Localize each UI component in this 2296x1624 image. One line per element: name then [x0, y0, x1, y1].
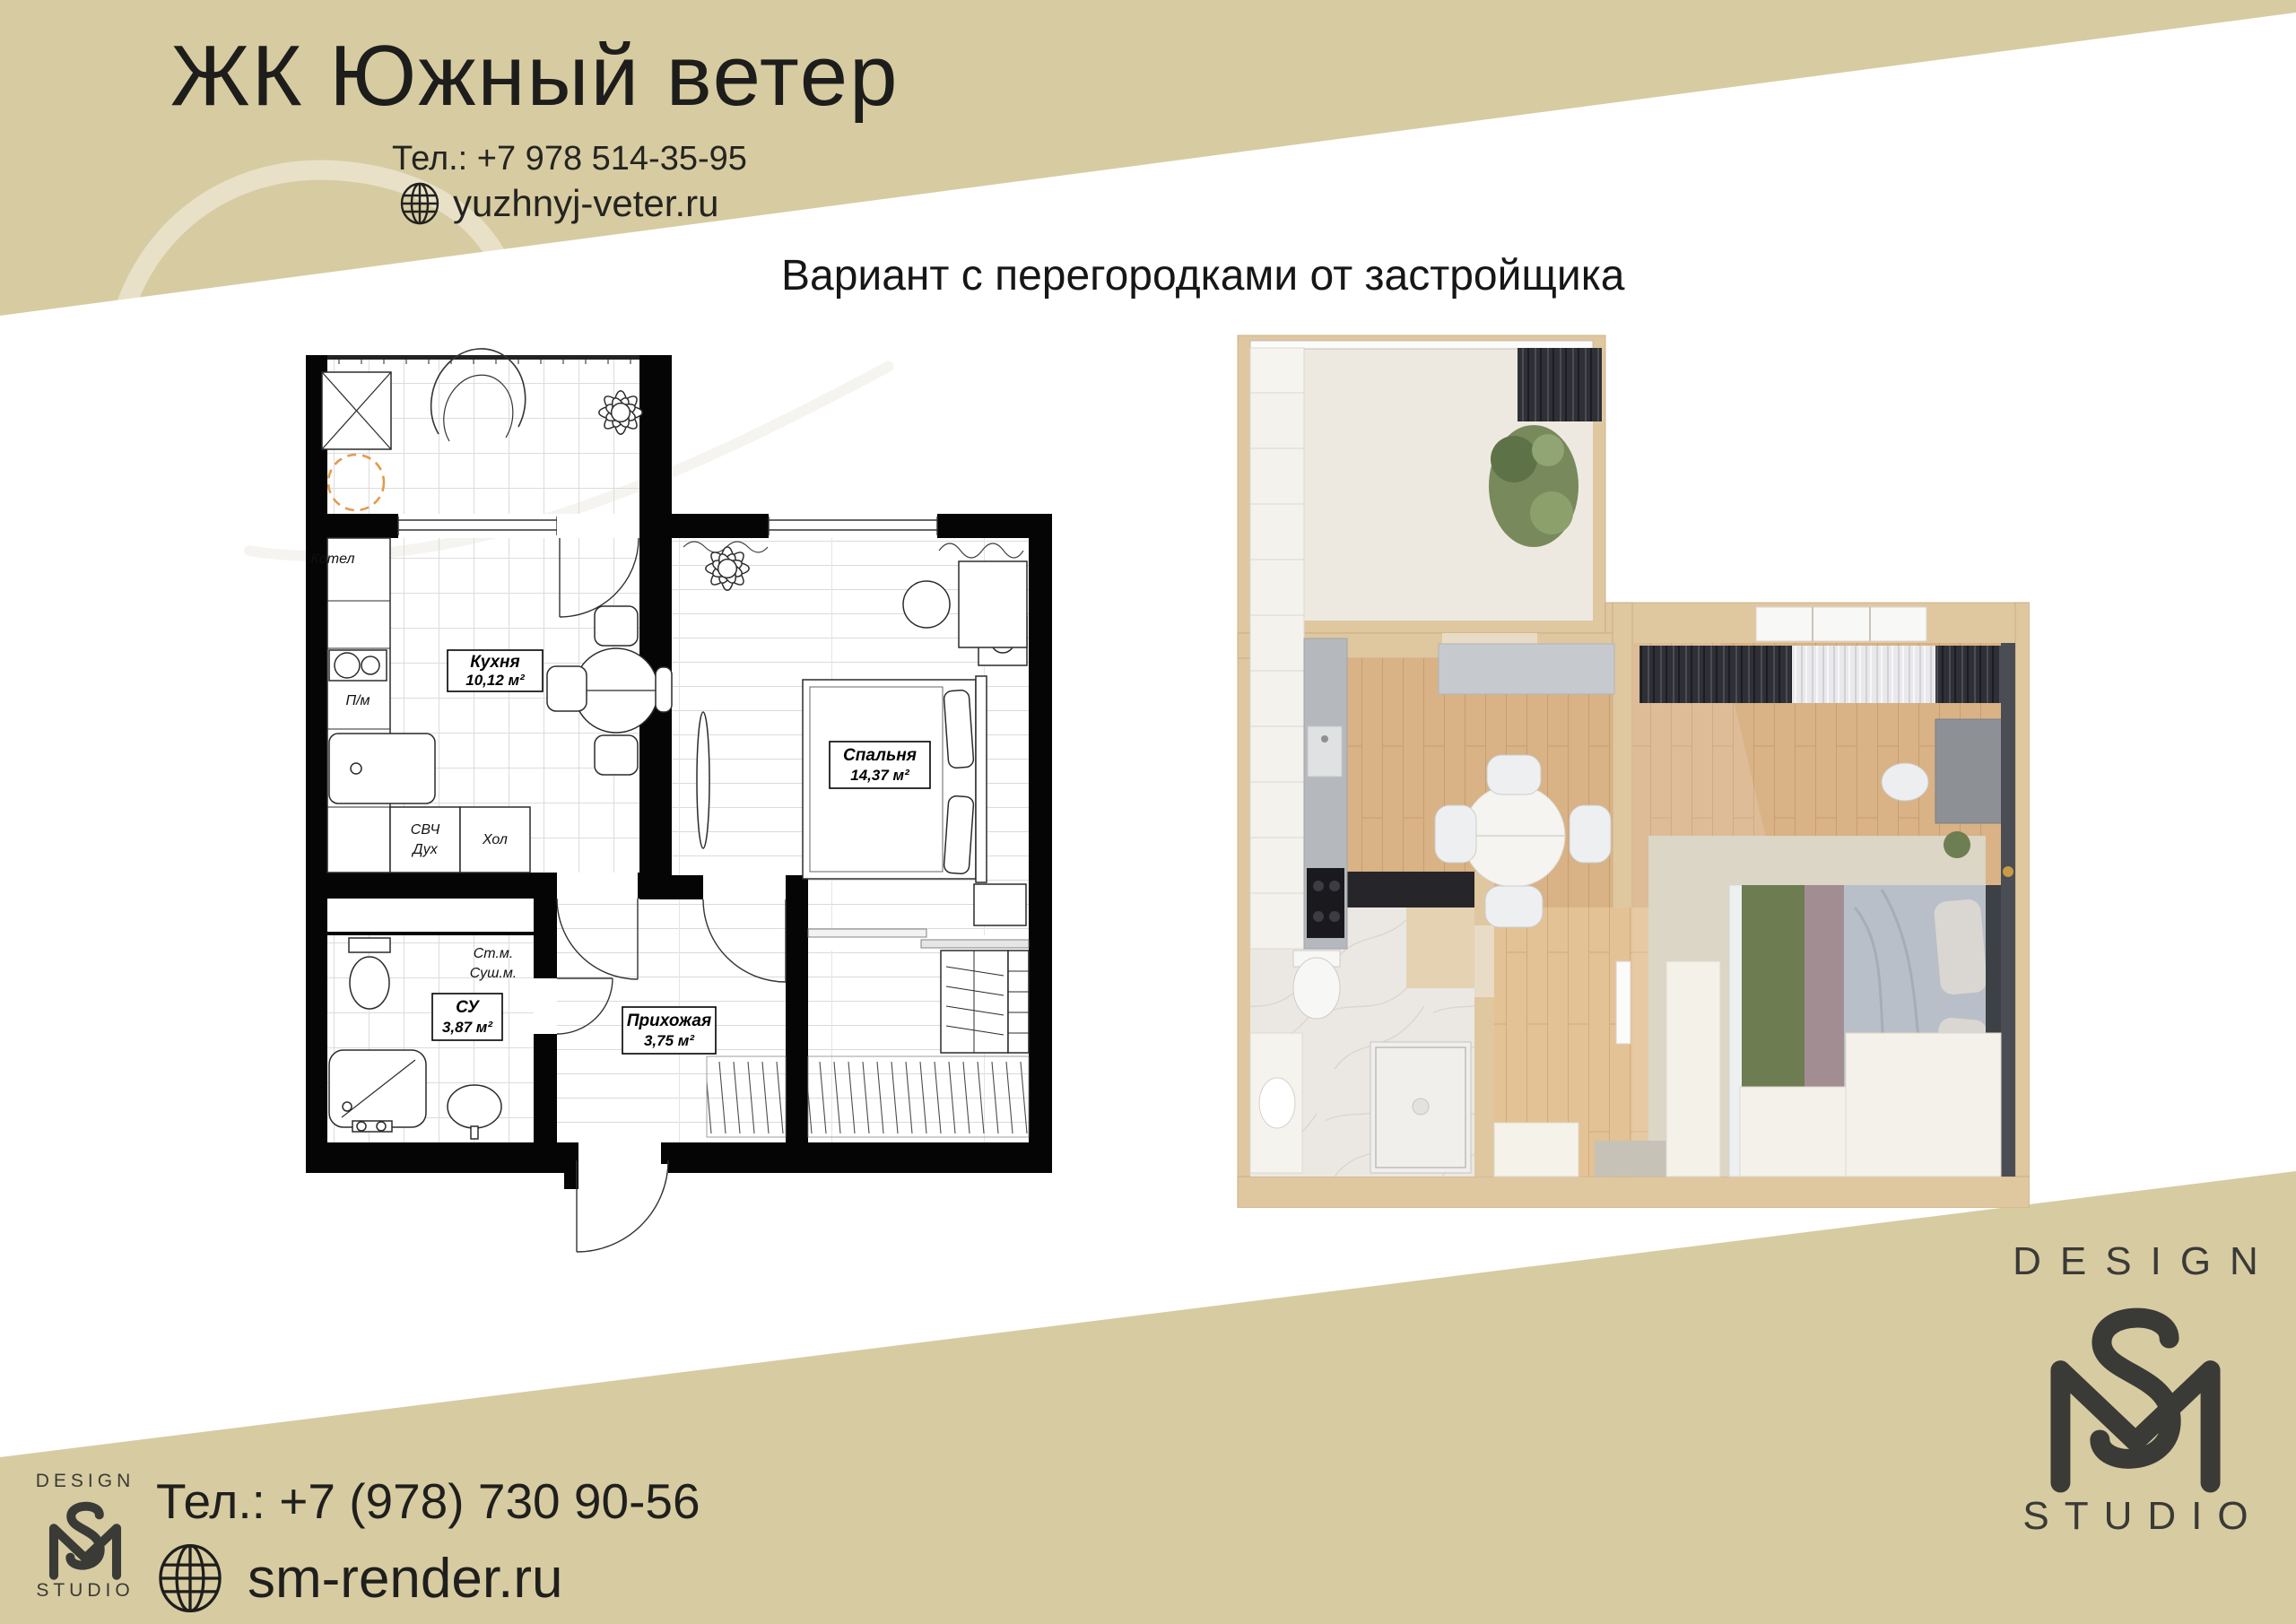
render-cooktop: [1307, 868, 1344, 938]
render-plant-small: [1944, 831, 1970, 858]
label-oven: Дух: [411, 842, 438, 857]
desk-chair: [903, 581, 950, 628]
subtitle: Вариант с перегородками от застройщика: [781, 251, 1678, 300]
room-label-kitchen: Кухня: [470, 653, 519, 672]
render-desk-chair: [1882, 763, 1928, 801]
logo-design-text-small: DESIGN: [36, 1471, 135, 1492]
render-sink: [1308, 726, 1342, 777]
render-door-leaf: [1616, 961, 1631, 1044]
render-chair: [1485, 886, 1543, 927]
render-console: [1494, 1123, 1578, 1177]
render-chair: [1487, 755, 1541, 795]
render-wardrobe: [1740, 1087, 1846, 1177]
headboard: [976, 676, 987, 882]
room-label-bathroom: СУ: [456, 998, 481, 1017]
label-washer: Ст.м.: [474, 946, 514, 961]
page-title: ЖК Южный ветер: [170, 27, 978, 126]
toilet-tank: [349, 938, 390, 952]
room-area-hallway: 3,75 м²: [644, 1032, 695, 1049]
render-bench: [1439, 644, 1614, 694]
footer-phone: Тел.: +7 (978) 730 90-56: [156, 1472, 700, 1530]
render-wardrobe: [1846, 1033, 2001, 1177]
render-desk: [1935, 719, 2005, 823]
floorplan-2d: Котел П/м СВЧ Дух Хол Ст.м. Суш.м. Кухня…: [299, 348, 1052, 1312]
render-toilet: [1293, 958, 1340, 1019]
sm-monogram-icon-small: [46, 1492, 125, 1580]
pillow: [944, 690, 974, 769]
sliding-door: [808, 929, 926, 937]
chair: [547, 666, 587, 711]
label-fridge: Хол: [482, 832, 508, 847]
render-sconce: [2003, 866, 2013, 877]
globe-icon-footer: [156, 1539, 224, 1618]
render-pillow: [1934, 899, 1988, 995]
pillow: [944, 795, 974, 874]
render-bench-white: [1666, 961, 1720, 1177]
footer-website: sm-render.ru: [248, 1547, 562, 1611]
sliding-door: [921, 940, 1029, 948]
sm-monogram-icon: [2040, 1284, 2231, 1494]
render-chair: [1570, 805, 1611, 863]
nightstand: [974, 884, 1026, 925]
logo-studio-text-small: STUDIO: [36, 1580, 134, 1602]
oven-cabinet: [390, 807, 460, 873]
room-label-bedroom: Спальня: [843, 746, 917, 765]
render-chair: [1435, 805, 1476, 863]
studio-logo-small: DESIGN STUDIO: [32, 1471, 138, 1602]
header-phone: Тел.: +7 978 514-35-95: [392, 140, 840, 178]
render-accent-wall: [2001, 643, 2015, 1177]
render-curtain-dark: [1639, 646, 1792, 703]
plant-icon: [706, 547, 749, 590]
label-boiler: Котел: [310, 551, 354, 567]
chair: [656, 667, 672, 712]
desk: [959, 561, 1027, 647]
logo-design-text: DESIGN: [1994, 1239, 2277, 1284]
render-bath-stub: [1406, 908, 1474, 988]
globe-icon: [399, 181, 440, 226]
washbasin: [448, 1085, 501, 1128]
wardrobe-shelves: [1008, 951, 1029, 1053]
logo-studio-text: STUDIO: [2007, 1494, 2263, 1539]
room-label-hallway: Прихожая: [627, 1012, 711, 1030]
room-area-kitchen: 10,12 м²: [465, 672, 526, 689]
render-curtain-light: [1792, 646, 1935, 703]
label-dishwasher: П/м: [345, 693, 370, 708]
chair: [595, 735, 638, 775]
room-area-bathroom: 3,87 м²: [442, 1019, 493, 1036]
chair: [595, 606, 638, 646]
label-microwave: СВЧ: [411, 822, 440, 838]
studio-logo-large: DESIGN STUDIO: [1987, 1239, 2283, 1539]
plant-icon: [599, 391, 642, 434]
render-curtain-dark: [1935, 646, 2007, 703]
label-dryer: Суш.м.: [470, 966, 517, 981]
render-window: [1756, 607, 1926, 641]
wardrobe-hatch: [808, 1056, 1029, 1137]
header-website: yuzhnyj-veter.ru: [453, 182, 718, 225]
footer-contacts: DESIGN STUDIO Тел.: +7 (978) 730 90-56: [32, 1471, 700, 1618]
wardrobe-hatch: [707, 1056, 786, 1137]
mirror: [697, 712, 709, 848]
render-balcony-blind: [1518, 348, 1602, 421]
header-website-row: yuzhnyj-veter.ru: [399, 181, 718, 226]
poster-page: ЖК Южный ветер Тел.: +7 978 514-35-95 yu…: [0, 0, 2296, 1624]
room-area-bedroom: 14,37 м²: [850, 767, 910, 784]
toilet: [350, 957, 389, 1009]
sink: [329, 734, 435, 803]
floorplan-3d-render: [1218, 334, 2030, 1208]
